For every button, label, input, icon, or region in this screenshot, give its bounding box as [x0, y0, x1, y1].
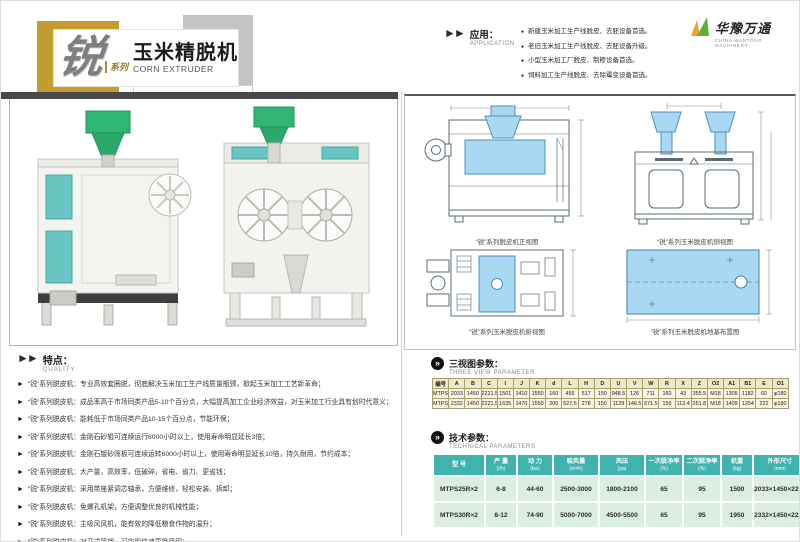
three-view-column-header: O1	[772, 379, 788, 389]
header-divider-bar	[1, 92, 398, 99]
feature-text: “锐”系列脱皮机：专业高效套圈脱，彻底解决玉米加工生产线质量瓶颈，掀起玉米加工工…	[28, 381, 325, 389]
application-label: 应用：	[470, 27, 515, 41]
three-view-column-header: H	[578, 379, 594, 389]
feature-text: “锐”系列脱皮机：成品率高于市场同类产品5-10个百分点，大幅提高加工企业经济效…	[28, 399, 393, 407]
three-view-cell: 1550	[530, 399, 546, 409]
page-title: 玉米精脱机	[133, 42, 238, 64]
feature-item: ► “锐”系列脱皮机：成品率高于市场同类产品5-10个百分点，大幅提高加工企业经…	[17, 399, 399, 407]
three-view-column-header: A	[449, 379, 465, 389]
company-logo: 华豫万通 CHINA WANTONG MACHINERY	[689, 17, 797, 48]
three-view-column-header: X	[675, 379, 691, 389]
arrow-right-icon: ►	[17, 451, 24, 459]
three-view-column-header: C	[481, 379, 497, 389]
three-view-cell: 2033	[449, 389, 465, 399]
tech-cell: 74-90	[518, 503, 552, 527]
three-view-cell: 2332	[449, 399, 465, 409]
features-section: ►► 特点： QUALITY ► “锐”系列脱皮机：专业高效套圈脱，彻底解决玉米…	[17, 352, 399, 542]
three-view-cell: 1550	[530, 389, 546, 399]
feature-item: ► “锐”系列脱皮机：金刚石镀砂筛板可连续运转6000小时以上，使用寿命明显延长…	[17, 451, 399, 459]
three-view-cell: 355.5	[691, 389, 707, 399]
three-view-cell: 160	[546, 389, 562, 399]
tech-row: MTPS30R×28-1274-905000-70004500-55006595…	[434, 503, 800, 527]
feature-item: ► “锐”系列脱皮机：金刚石砂辊可连续运行8000小时以上，使用寿命明显延长3倍…	[17, 434, 399, 442]
three-view-column-header: L	[562, 379, 578, 389]
side-view-drawing	[609, 102, 781, 234]
series-character: 锐	[57, 36, 106, 80]
three-view-cell: 1501	[497, 389, 513, 399]
foundation-caption: “锐”系列玉米脱皮机地基布置图	[609, 326, 781, 336]
tech-cell: 5000-7000	[554, 503, 598, 527]
dotted-arrow-icon: ►►	[444, 27, 464, 47]
three-view-cell: 60	[756, 389, 772, 399]
top-view-caption: “锐”系列玉米脱皮机俯视图	[421, 326, 593, 336]
tech-cell: 4500-5500	[600, 503, 644, 527]
three-view-cell: 517	[578, 389, 594, 399]
tech-cell: 95	[684, 503, 720, 527]
feature-text: “锐”系列脱皮机：主吸风风机，能有效的降低粮食作物的温升；	[28, 521, 216, 529]
three-view-cell: 1470	[513, 399, 529, 409]
tech-header-row: 型 号 产 量 (t/h) 动 力 (kw) 吸风量	[434, 455, 800, 475]
arrow-right-icon: ►	[17, 504, 24, 512]
tech-column-unit: (%)	[647, 466, 681, 472]
three-view-column-header: I	[497, 379, 513, 389]
tech-cell: 44-60	[518, 477, 552, 501]
three-view-cell: φ180	[772, 389, 788, 399]
three-view-cell: 527.5	[562, 399, 578, 409]
three-view-cell: 43	[675, 389, 691, 399]
application-item: ● 饲料加工生产线脱皮、去除霉变设备首选。	[521, 72, 721, 80]
product-photo-panel	[9, 99, 398, 346]
tech-params-header: » 技术参数： TECHNICAL PARAMETERS	[431, 431, 535, 450]
tech-column-header: 二次脱净率 (%)	[684, 455, 720, 475]
tech-cell: 65	[646, 503, 682, 527]
three-view-cell: 1182	[740, 389, 756, 399]
tech-cell: 6-8	[486, 477, 516, 501]
feature-item: ► “锐”系列脱皮机：主吸风风机，能有效的降低粮食作物的温升；	[17, 521, 399, 529]
foundation-drawing	[609, 244, 781, 324]
feature-text: “锐”系列脱皮机：免螺孔机架，方便调整优良的机械性能；	[28, 504, 202, 512]
tech-cell: MTPS25R×2	[434, 477, 484, 501]
feature-text: “锐”系列脱皮机：金刚石砂辊可连续运行8000小时以上，使用寿命明显延长3倍；	[28, 434, 269, 442]
three-view-column-header: V	[627, 379, 643, 389]
tech-column-label: 风压	[601, 458, 643, 466]
three-view-cell: MTPS-30R×2	[433, 399, 449, 409]
tech-column-header: 机重 (kg)	[722, 455, 752, 475]
three-view-column-header: 编号	[433, 379, 449, 389]
tech-cell: 2033×1450×2222	[754, 477, 800, 501]
tech-cell: 1800-2100	[600, 477, 644, 501]
front-view-drawing	[421, 102, 593, 234]
tech-column-header: 一次脱净率 (%)	[646, 455, 682, 475]
three-view-cell: 2221.5	[481, 389, 497, 399]
features-header: ►► 特点： QUALITY	[17, 352, 399, 373]
application-item-text: 新建玉米加工生产线脱皮、去胚设备首选。	[528, 28, 652, 36]
tech-column-unit: (mm)	[755, 466, 800, 472]
three-view-column-header: Z	[691, 379, 707, 389]
bullet-icon: ●	[521, 28, 524, 36]
three-view-column-header: W	[643, 379, 659, 389]
tech-column-header: 风压 (pa)	[600, 455, 644, 475]
tech-column-unit: (t/h)	[487, 466, 515, 472]
three-view-column-header: d	[546, 379, 562, 389]
arrow-right-icon: ►	[17, 399, 24, 407]
feature-item: ► “锐”系列脱皮机：对开式筛架，可实现快速更换筛网；	[17, 539, 399, 542]
three-view-cell: 1450	[465, 399, 481, 409]
three-view-label-en: THREE VIEW PARAMETER	[449, 370, 535, 376]
three-view-cell: 1129	[610, 399, 626, 409]
bullet-icon: ●	[521, 43, 524, 51]
tech-column-label: 动 力	[519, 458, 551, 466]
tech-params-table: 型 号 产 量 (t/h) 动 力 (kw) 吸风量	[432, 453, 800, 529]
tech-params-label-en: TECHNICAL PARAMETERS	[449, 444, 535, 450]
feature-item: ► “锐”系列脱皮机：能耗低于市场同类产品10-15个百分点，节能环保；	[17, 416, 399, 424]
tech-column-label: 型 号	[435, 461, 483, 469]
side-view-figure: “锐”系列玉米脱皮机侧视图	[609, 102, 781, 246]
tech-column-label: 吸风量	[555, 458, 597, 466]
logo-name: 华豫万通	[715, 18, 771, 37]
arrow-right-icon: ►	[17, 486, 24, 494]
tech-row: MTPS25R×26-844-602500-30001800-210065951…	[434, 477, 800, 501]
tech-cell: 2500-3000	[554, 477, 598, 501]
tech-column-header: 吸风量 (m³/h)	[554, 455, 598, 475]
three-view-cell: 150	[659, 399, 675, 409]
three-view-cell: 2221.5	[481, 399, 497, 409]
bullet-icon: ●	[521, 57, 524, 65]
application-item-text: 饲料加工生产线脱皮、去除霉变设备首选。	[528, 72, 652, 80]
application-header: ►► 应用： APPLICATION	[444, 27, 515, 47]
dotted-arrow-icon: ►►	[17, 352, 37, 373]
tech-column-header: 动 力 (kw)	[518, 455, 552, 475]
three-view-cell: MTPS-25R×2	[433, 389, 449, 399]
tech-column-label: 产 量	[487, 458, 515, 466]
three-view-cell: M18	[707, 399, 723, 409]
title-card: 锐 系列 玉米精脱机 CORN EXTRUDER	[53, 29, 239, 87]
three-view-column-header: R	[659, 379, 675, 389]
three-view-cell: φ180	[772, 399, 788, 409]
three-view-cell: 455	[562, 389, 578, 399]
three-view-cell: 146.5	[627, 399, 643, 409]
arrow-right-icon: ►	[17, 469, 24, 477]
three-view-cell: 1410	[513, 389, 529, 399]
tech-column-label: 二次脱净率	[685, 458, 719, 466]
arrow-right-icon: ►	[17, 434, 24, 442]
three-view-cell: 126	[627, 389, 643, 399]
feature-item: ► “锐”系列脱皮机：专业高效套圈脱，彻底解决玉米加工生产线质量瓶颈，掀起玉米加…	[17, 381, 399, 389]
three-view-column-header: D	[594, 379, 610, 389]
foundation-figure: “锐”系列玉米脱皮机地基布置图	[609, 244, 781, 336]
features-label: 特点：	[43, 352, 76, 367]
drawings-panel: “锐”系列脱皮机正视图	[404, 94, 796, 350]
three-view-cell: 948.5	[610, 389, 626, 399]
feature-text: “锐”系列脱皮机：采用带座紧调芯轴承，方便维修，轻松安装、拆卸；	[28, 486, 236, 494]
tech-cell: MTPS30R×2	[434, 503, 484, 527]
bullet-icon: ●	[521, 72, 524, 80]
tech-column-header: 外形尺寸 (mm)	[754, 455, 800, 475]
three-view-column-header: U	[610, 379, 626, 389]
tech-cell: 65	[646, 477, 682, 501]
feature-text: “锐”系列脱皮机：能耗低于市场同类产品10-15个百分点，节能环保；	[28, 416, 233, 424]
three-view-column-header: K	[530, 379, 546, 389]
feature-text: “锐”系列脱皮机：金刚石镀砂筛板可连续运转6000小时以上，使用寿命明显延长10…	[28, 451, 354, 459]
tech-column-label: 外形尺寸	[755, 458, 800, 466]
three-view-column-header: B	[465, 379, 481, 389]
arrow-right-icon: ►	[17, 416, 24, 424]
series-label: 系列	[105, 61, 128, 73]
tech-column-label: 一次脱净率	[647, 458, 681, 466]
three-view-header: » 三视图参数： THREE VIEW PARAMETER	[431, 357, 535, 376]
front-view-figure: “锐”系列脱皮机正视图	[421, 102, 593, 246]
feature-text: “锐”系列脱皮机：大产量，高效率，低破碎，省电、省力、更省钱；	[28, 469, 230, 477]
tech-cell: 2332×1450×2222	[754, 503, 800, 527]
tech-cell: 8-12	[486, 503, 516, 527]
page-center-divider	[401, 92, 402, 536]
three-view-cell: 1305	[724, 389, 740, 399]
title-block: 锐 系列 玉米精脱机 CORN EXTRUDER	[29, 7, 253, 99]
arrow-right-icon: ►	[17, 521, 24, 529]
tech-column-unit: (kw)	[519, 466, 551, 472]
tech-cell: 95	[684, 477, 720, 501]
application-label-en: APPLICATION	[470, 41, 515, 47]
three-view-column-header: B1	[740, 379, 756, 389]
features-label-en: QUALITY	[43, 367, 76, 373]
three-view-cell: 278	[578, 399, 594, 409]
three-view-cell: 251.8	[691, 399, 707, 409]
three-view-cell: 711	[643, 389, 659, 399]
three-view-cell: 150	[594, 399, 610, 409]
tech-cell: 1950	[722, 503, 752, 527]
three-view-row: MTPS-25R×2203314502221.51501141015501604…	[433, 389, 789, 399]
top-view-drawing	[421, 244, 593, 324]
three-view-cell: 200	[546, 399, 562, 409]
three-view-cell: 1450	[465, 389, 481, 399]
page-subtitle: CORN EXTRUDER	[133, 64, 238, 74]
tech-params-label: 技术参数：	[449, 431, 535, 444]
tech-column-unit: (pa)	[601, 466, 643, 472]
three-view-column-header: A1	[724, 379, 740, 389]
feature-item: ► “锐”系列脱皮机：免螺孔机架，方便调整优良的机械性能；	[17, 504, 399, 512]
tech-column-unit: (%)	[685, 466, 719, 472]
three-view-cell: 1635	[497, 399, 513, 409]
three-view-row: MTPS-30R×2233214502221.51635147015502005…	[433, 399, 789, 409]
tech-column-unit: (m³/h)	[555, 466, 597, 472]
three-view-cell: 671.5	[643, 399, 659, 409]
logo-leaf-icon	[689, 17, 713, 37]
three-view-cell: 222	[756, 399, 772, 409]
three-view-header-row: 编号ABCIJKdLHDUVWRXZO2A1B1EO1	[433, 379, 789, 389]
brochure-page: 锐 系列 玉米精脱机 CORN EXTRUDER ►► 应用： APPLICAT…	[0, 0, 800, 542]
feature-item: ► “锐”系列脱皮机：采用带座紧调芯轴承，方便维修，轻松安装、拆卸；	[17, 486, 399, 494]
feature-text: “锐”系列脱皮机：对开式筛架，可实现快速更换筛网；	[28, 539, 189, 542]
three-view-cell: M18	[707, 389, 723, 399]
features-list: ► “锐”系列脱皮机：专业高效套圈脱，彻底解决玉米加工生产线质量瓶颈，掀起玉米加…	[17, 381, 399, 542]
top-view-figure: “锐”系列玉米脱皮机俯视图	[421, 244, 593, 336]
chevron-circle-icon: »	[431, 357, 444, 370]
three-view-cell: 1409	[724, 399, 740, 409]
three-view-cell: 160	[659, 389, 675, 399]
machine-photo-left	[20, 105, 200, 333]
application-item: ● 小型玉米加工厂脱皮、制糁设备首选。	[521, 57, 721, 65]
application-item-text: 小型玉米加工厂脱皮、制糁设备首选。	[528, 57, 639, 65]
three-view-column-header: O2	[707, 379, 723, 389]
tech-column-unit: (kg)	[723, 466, 751, 472]
machine-photo-right	[202, 103, 387, 335]
three-view-cell: 150	[594, 389, 610, 399]
arrow-right-icon: ►	[17, 539, 24, 542]
arrow-right-icon: ►	[17, 381, 24, 389]
three-view-label: 三视图参数：	[449, 357, 535, 370]
three-view-column-header: E	[756, 379, 772, 389]
feature-item: ► “锐”系列脱皮机：大产量，高效率，低破碎，省电、省力、更省钱；	[17, 469, 399, 477]
logo-name-en: CHINA WANTONG MACHINERY	[715, 38, 797, 48]
tech-column-header: 型 号	[434, 455, 484, 475]
tech-cell: 1500	[722, 477, 752, 501]
three-view-cell: 113.4	[675, 399, 691, 409]
tech-column-header: 产 量 (t/h)	[486, 455, 516, 475]
three-view-column-header: J	[513, 379, 529, 389]
three-view-cell: 1254	[740, 399, 756, 409]
application-item-text: 老旧玉米加工生产线脱皮、去胚设备升级。	[528, 43, 652, 51]
chevron-circle-icon: »	[431, 431, 444, 444]
tech-column-label: 机重	[723, 458, 751, 466]
three-view-table: 编号ABCIJKdLHDUVWRXZO2A1B1EO1 MTPS-25R×220…	[432, 378, 789, 409]
